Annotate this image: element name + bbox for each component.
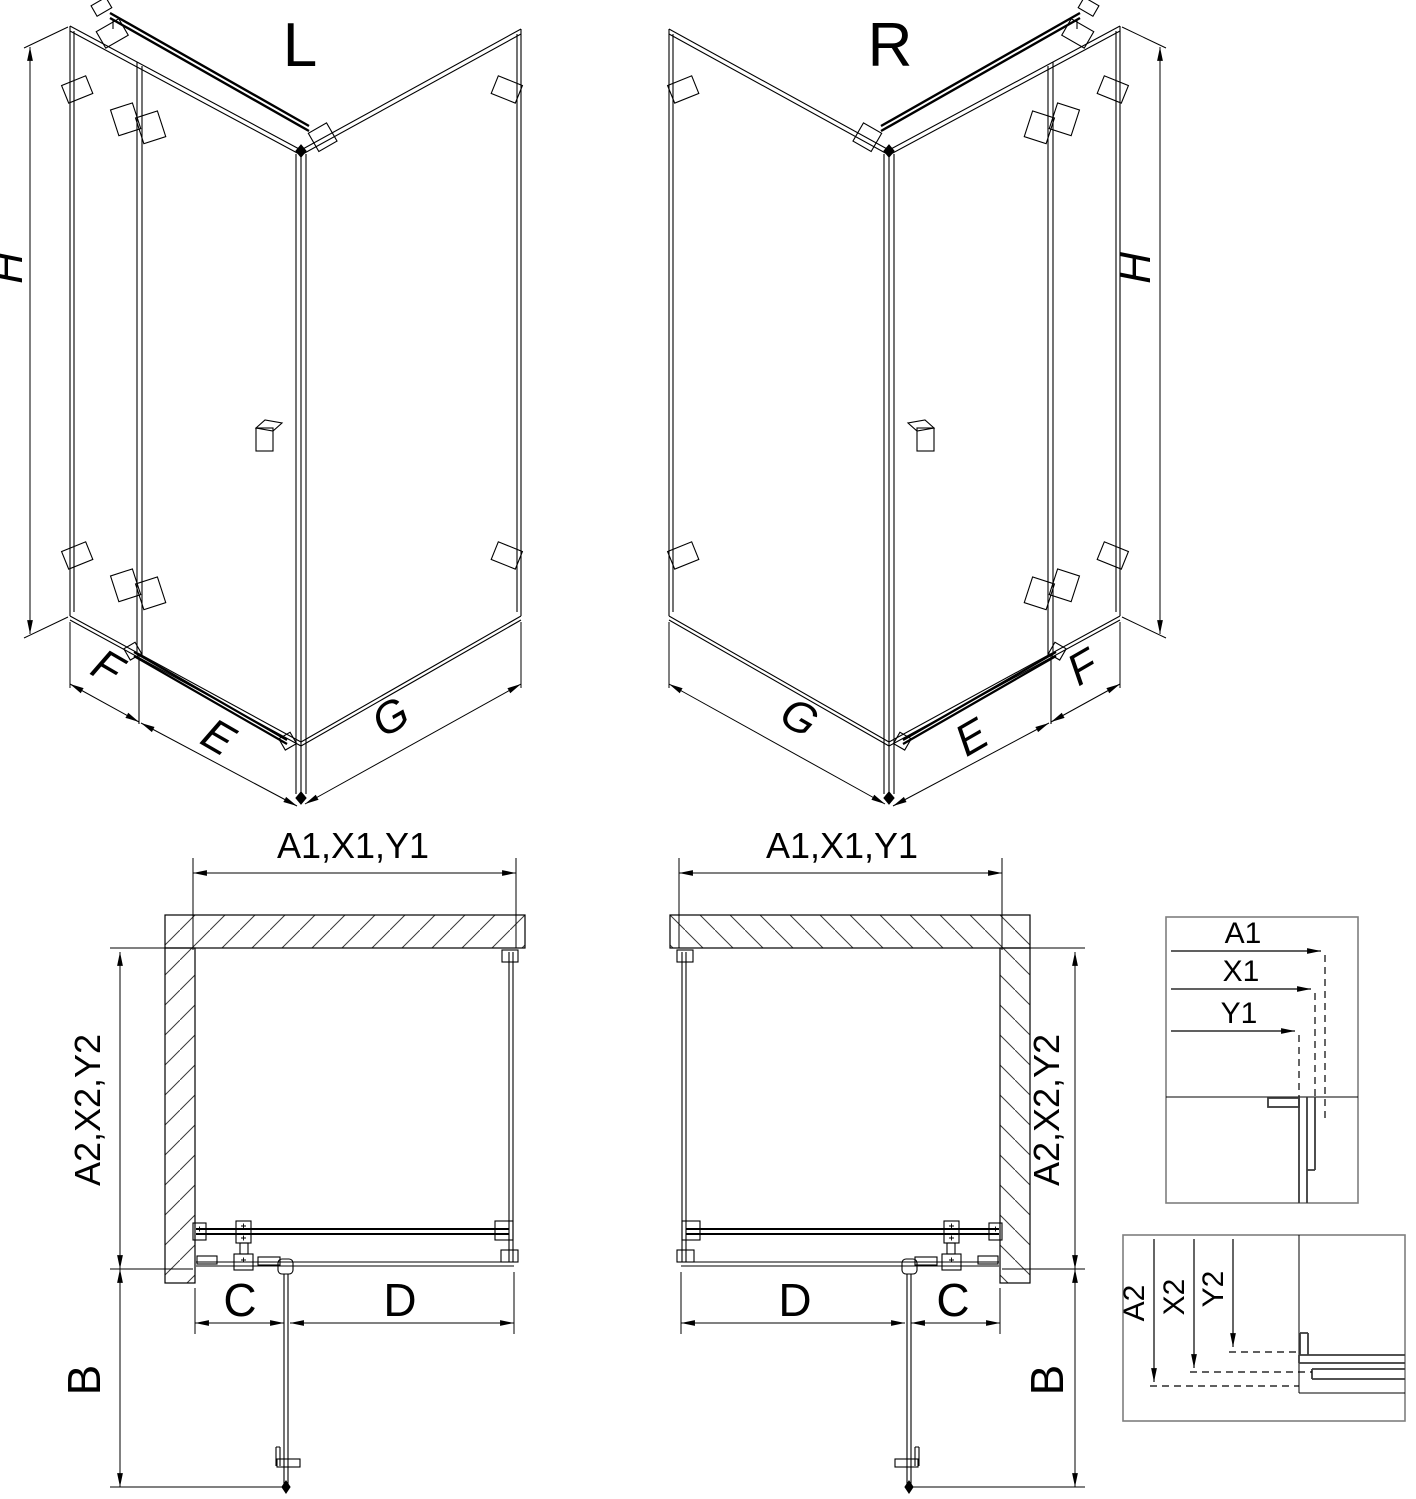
dim-label-D-left: D — [383, 1274, 416, 1326]
profile-section — [1268, 1097, 1315, 1203]
dim-label-width-left: A1,X1,Y1 — [277, 825, 429, 866]
iso-right-label: R — [868, 11, 913, 80]
technical-drawing-page: L H F E G R H F E G A1,X1,Y1 A2,X2,Y2 C … — [0, 0, 1416, 1499]
dim-label-F-right: F — [1059, 638, 1109, 695]
detail-label-A2: A2 — [1118, 1285, 1151, 1322]
detail-label-Y1: Y1 — [1221, 997, 1258, 1030]
dim-label-E-right: E — [947, 709, 997, 766]
dim-label-width-right: A1,X1,Y1 — [766, 825, 918, 866]
iso-left-label: L — [283, 11, 317, 80]
detail-box-frame — [1166, 917, 1358, 1203]
dim-label-G-right: G — [772, 688, 826, 748]
detail-label-X2: X2 — [1158, 1279, 1191, 1316]
detail-label-X1: X1 — [1223, 955, 1260, 988]
shower-enclosure-drawing: L H F E G R H F E G A1,X1,Y1 A2,X2,Y2 C … — [0, 0, 1416, 1499]
profile-section — [1299, 1333, 1405, 1379]
dim-label-C-left: C — [223, 1274, 256, 1326]
plan-view-left — [110, 858, 525, 1493]
dim-label-H-right: H — [1111, 252, 1160, 284]
detail-box-depth — [1123, 1235, 1405, 1421]
dim-label-H-left: H — [0, 252, 32, 284]
dim-label-D-right: D — [778, 1274, 811, 1326]
detail-box-width — [1166, 917, 1358, 1203]
dim-label-G-left: G — [364, 688, 418, 748]
dim-label-depth-right: A2,X2,Y2 — [1026, 1034, 1067, 1186]
detail-label-Y2: Y2 — [1197, 1271, 1230, 1308]
dim-label-E-left: E — [193, 709, 243, 766]
dim-label-C-right: C — [936, 1274, 969, 1326]
detail-label-A1: A1 — [1225, 917, 1262, 950]
dim-label-depth-left: A2,X2,Y2 — [67, 1034, 108, 1186]
dim-label-B-left: B — [58, 1365, 110, 1396]
plan-view-right — [670, 858, 1085, 1493]
dim-label-B-right: B — [1021, 1365, 1073, 1396]
